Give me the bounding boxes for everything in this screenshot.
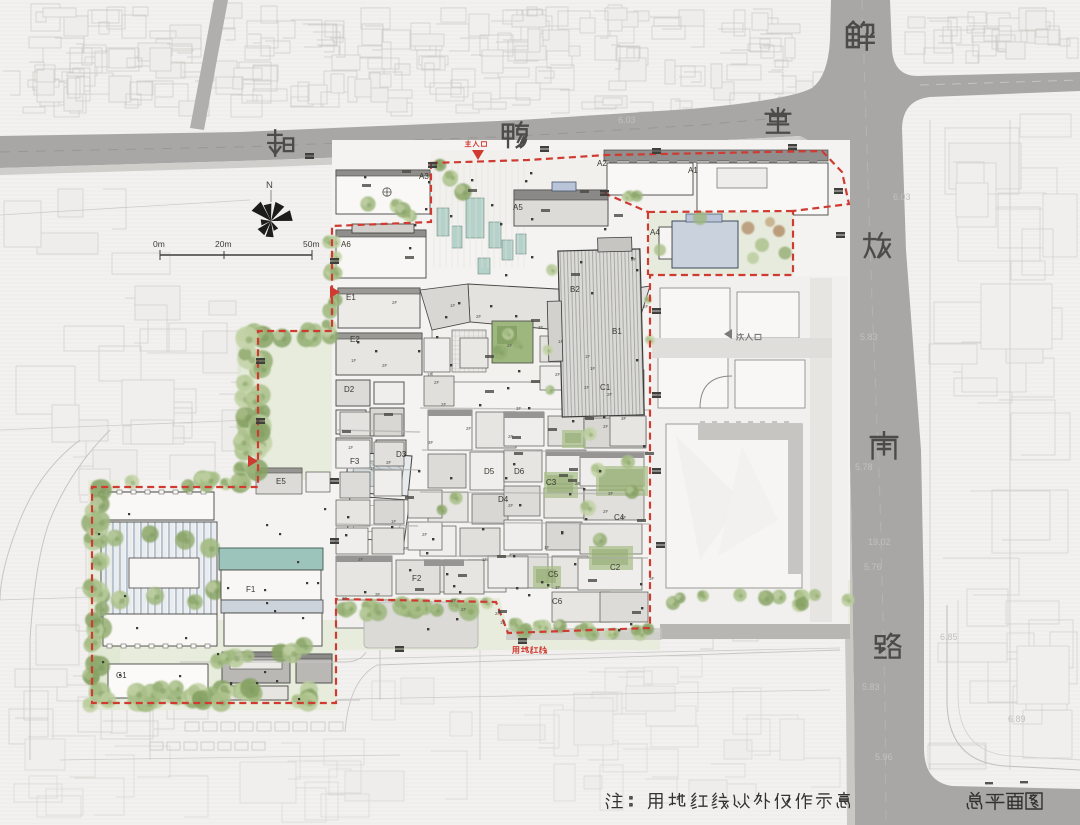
svg-text:1F: 1F [427,372,433,377]
svg-text:19.02: 19.02 [868,537,891,547]
svg-text:2F: 2F [451,598,457,603]
svg-text:1F: 1F [621,515,627,520]
svg-text:2F: 2F [603,424,609,429]
svg-text:3F: 3F [516,406,522,411]
svg-text:E1: E1 [346,293,356,302]
svg-text:A1: A1 [688,166,698,175]
svg-text:F1: F1 [246,585,256,594]
svg-text:A2: A2 [597,159,607,168]
svg-text:A5: A5 [513,203,523,212]
svg-text:B1: B1 [612,327,622,336]
svg-text:2F: 2F [607,392,613,397]
svg-text:5.96: 5.96 [875,752,893,762]
svg-text:D5: D5 [484,467,495,476]
svg-text:1F: 1F [348,445,354,450]
svg-text:5.83: 5.83 [860,332,878,342]
svg-text:A4: A4 [650,228,660,237]
svg-text:6.03: 6.03 [618,115,636,125]
svg-text:5.76: 5.76 [864,562,882,572]
svg-text:1F: 1F [544,545,550,550]
svg-text:B2: B2 [570,285,580,294]
svg-text:C6: C6 [552,597,563,606]
svg-text:C1: C1 [600,383,611,392]
svg-text:E5: E5 [276,477,286,486]
svg-text:3F: 3F [375,592,381,597]
svg-text:2F: 2F [603,509,609,514]
svg-text:3F: 3F [621,416,627,421]
svg-text:2F: 2F [466,426,472,431]
svg-text:1F: 1F [585,354,591,359]
svg-text:1F: 1F [558,339,564,344]
svg-text:2F: 2F [584,385,590,390]
svg-text:D6: D6 [514,467,525,476]
svg-text:2F: 2F [461,607,467,612]
svg-text:3F: 3F [386,460,392,465]
svg-text:2F: 2F [403,546,409,551]
svg-text:1F: 1F [370,466,376,471]
svg-text:C3: C3 [546,478,557,487]
svg-text:6.85: 6.85 [940,632,958,642]
svg-text:3F: 3F [608,491,614,496]
svg-text:C2: C2 [610,563,621,572]
svg-text:50m: 50m [303,239,320,249]
svg-text:1F: 1F [500,620,506,625]
svg-text:2F: 2F [392,300,398,305]
svg-text:2F: 2F [434,380,440,385]
svg-text:2F: 2F [342,596,348,601]
svg-text:2F: 2F [476,314,482,319]
svg-text:F2: F2 [412,574,422,583]
svg-text:1F: 1F [391,519,397,524]
svg-text:3F: 3F [555,585,561,590]
svg-text:F3: F3 [350,457,360,466]
svg-text:0m: 0m [153,239,165,249]
svg-text:A3: A3 [419,172,429,181]
svg-text:1F: 1F [351,358,357,363]
svg-text:G1: G1 [116,671,127,680]
svg-text:6.03: 6.03 [893,192,911,202]
svg-text:5.78: 5.78 [855,462,873,472]
svg-text:A6: A6 [341,240,351,249]
svg-text:1F: 1F [450,303,456,308]
svg-text:6.89: 6.89 [1008,714,1026,724]
svg-text:N: N [266,180,273,191]
svg-text:2F: 2F [441,402,447,407]
svg-text:2F: 2F [643,304,649,309]
svg-text:20m: 20m [215,239,232,249]
svg-text:5.83: 5.83 [862,682,880,692]
svg-text:1F: 1F [482,557,488,562]
svg-text:3F: 3F [649,576,655,581]
svg-text:C5: C5 [548,570,559,579]
svg-text:1F: 1F [590,366,596,371]
svg-text:2F: 2F [508,503,514,508]
svg-text:3F: 3F [428,440,434,445]
svg-text:3F: 3F [538,325,544,330]
svg-text:2F: 2F [382,363,388,368]
svg-text:2F: 2F [507,343,513,348]
svg-text:2F: 2F [358,557,364,562]
svg-text:2F: 2F [422,532,428,537]
svg-text:2F: 2F [555,372,561,377]
svg-text:D3: D3 [396,450,407,459]
svg-text:D2: D2 [344,385,355,394]
